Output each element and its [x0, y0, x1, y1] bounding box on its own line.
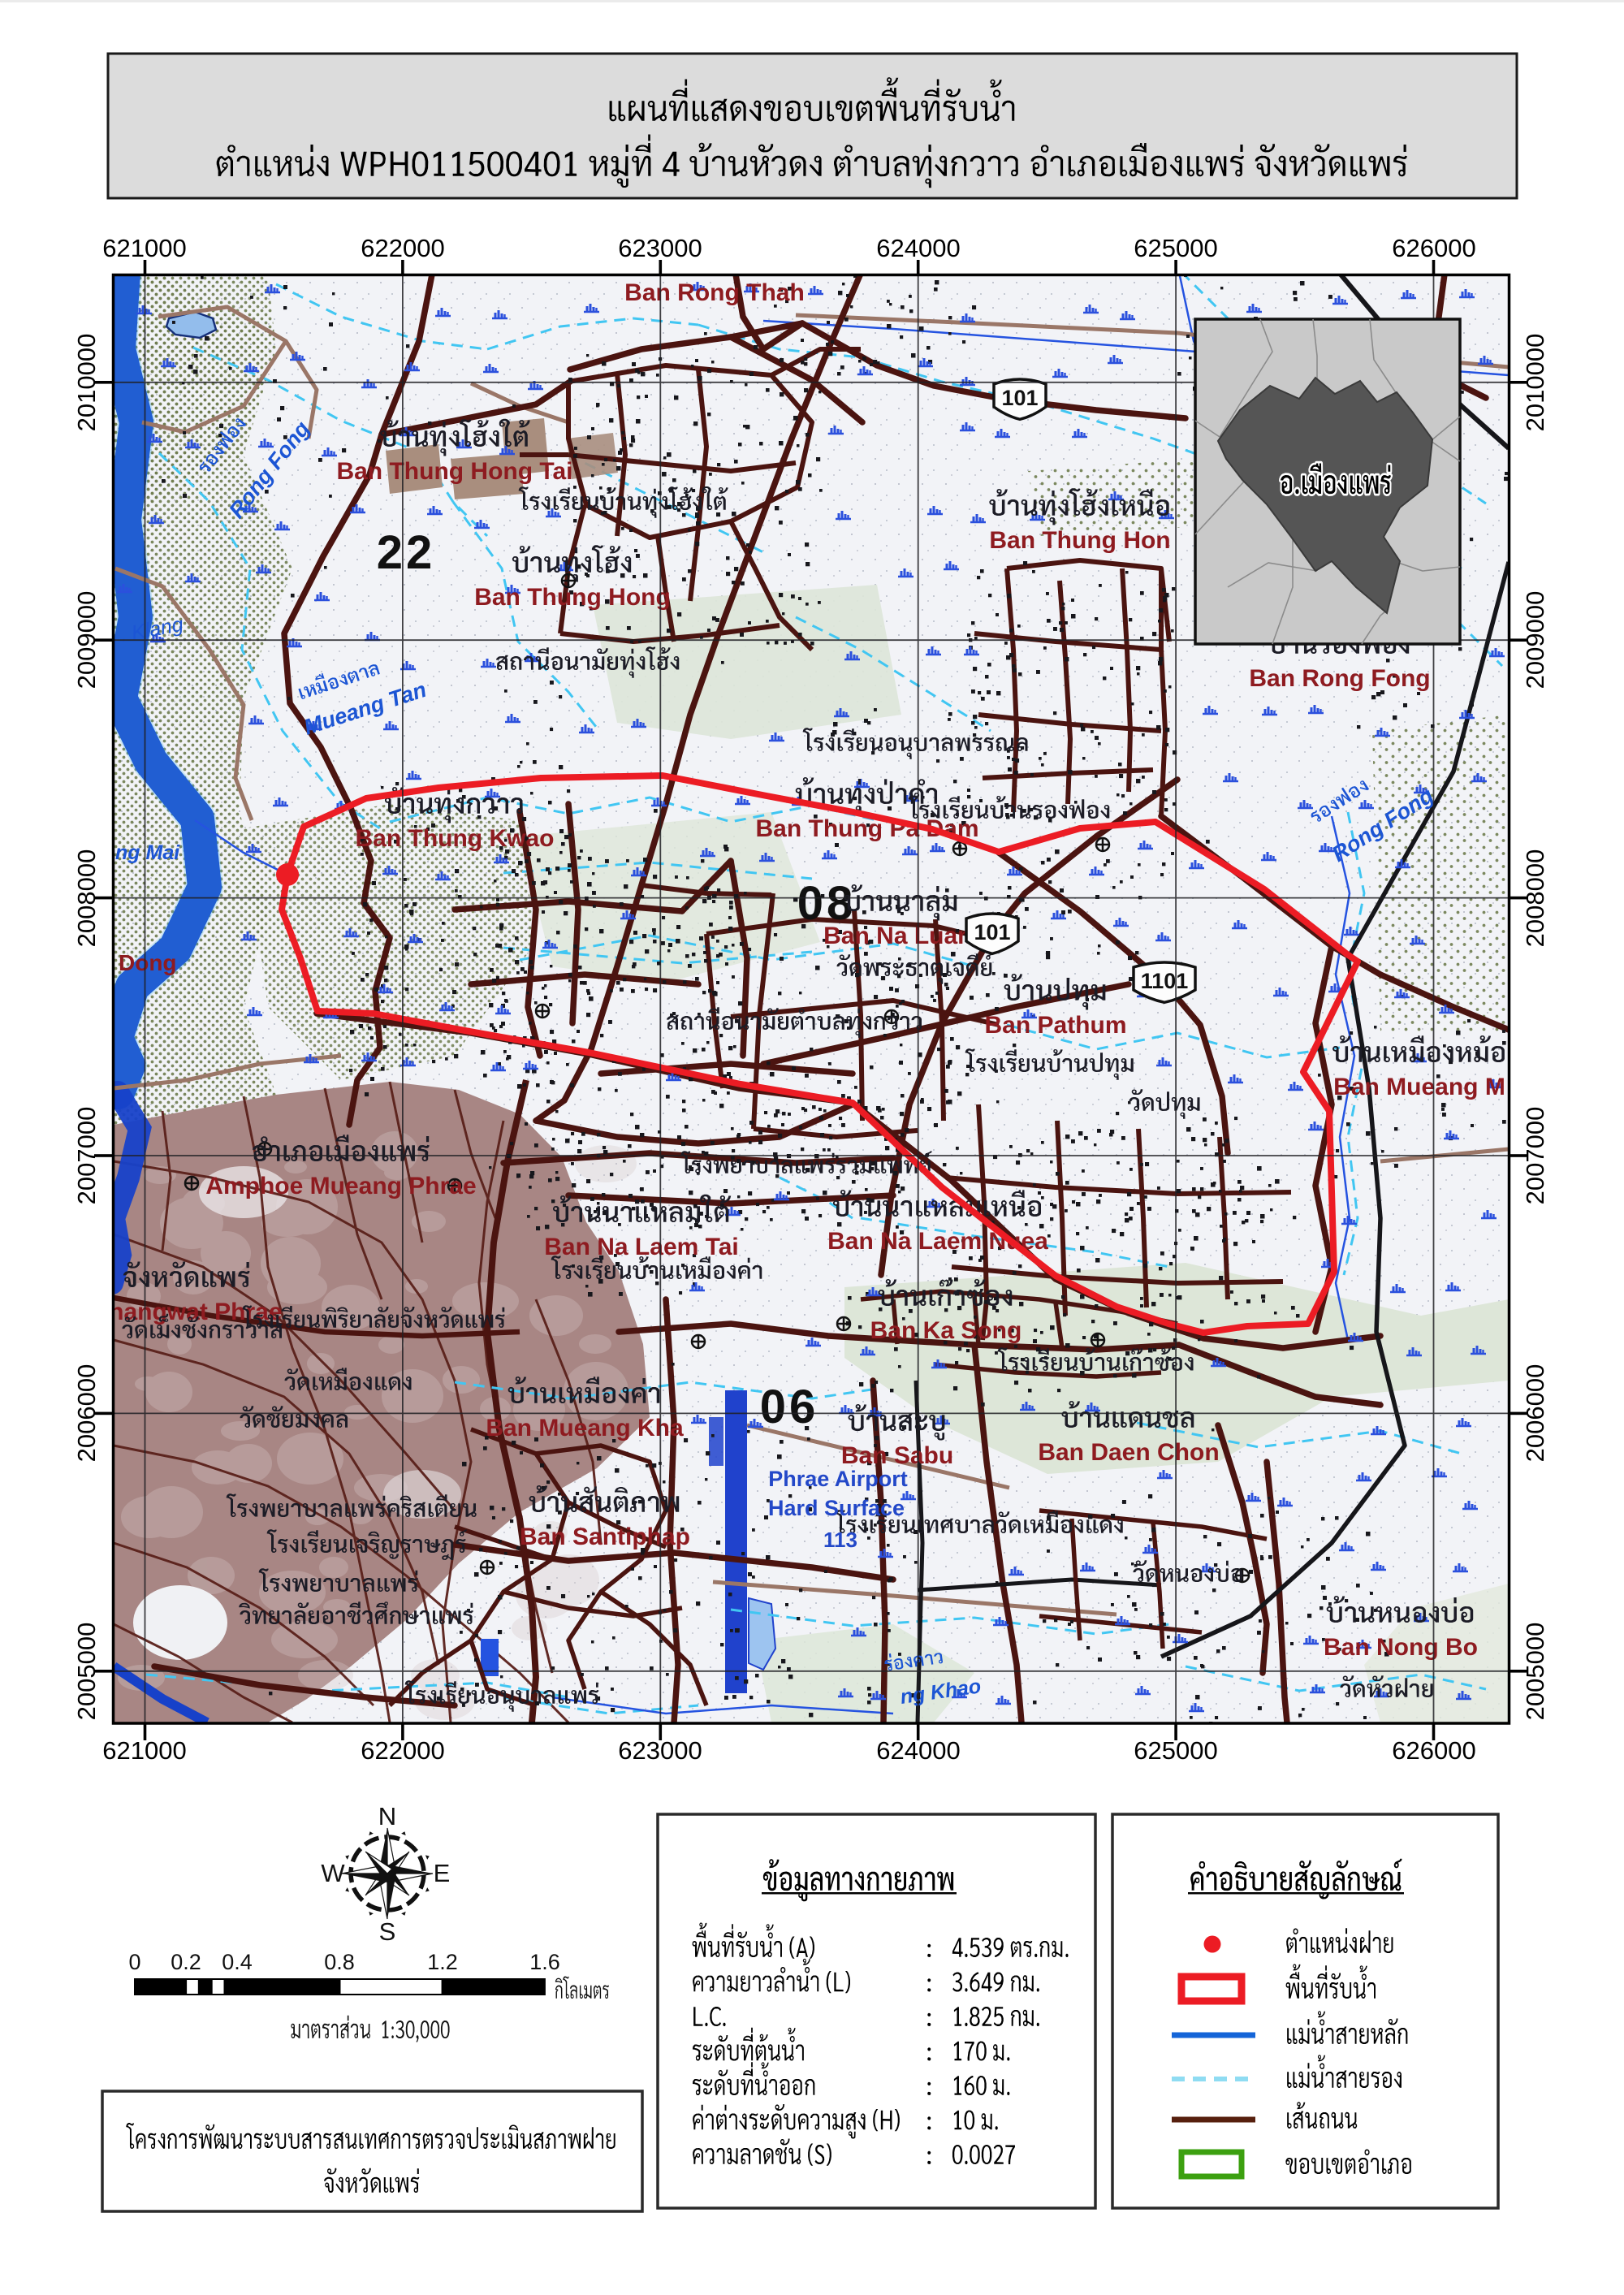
svg-text:Ban Mueang M: Ban Mueang M: [1333, 1074, 1505, 1100]
svg-text:Ban Thung Pa Dam: Ban Thung Pa Dam: [755, 815, 978, 842]
svg-text:625000: 625000: [1134, 234, 1217, 262]
svg-text:625000: 625000: [1134, 1736, 1217, 1765]
svg-text:624000: 624000: [876, 1736, 960, 1765]
svg-text:0.8: 0.8: [324, 1950, 355, 1974]
svg-text:Ban Pathum: Ban Pathum: [984, 1012, 1126, 1039]
svg-text:101: 101: [974, 920, 1010, 944]
svg-text:Ban Na Luam: Ban Na Luam: [823, 923, 979, 949]
svg-text:0.2: 0.2: [171, 1950, 201, 1974]
svg-text:Ban Thung Hon: Ban Thung Hon: [989, 527, 1170, 554]
svg-text:623000: 623000: [618, 234, 702, 262]
svg-text:Hard Surface: Hard Surface: [768, 1496, 905, 1520]
svg-text:Changwat Phrae: Changwat Phrae: [91, 1299, 282, 1325]
svg-text:621000: 621000: [102, 1736, 186, 1765]
svg-text:Ban Thung Kwao: Ban Thung Kwao: [356, 825, 555, 852]
svg-text:Ban Nong Bo: Ban Nong Bo: [1324, 1634, 1478, 1661]
svg-text:Ban Ka Song: Ban Ka Song: [870, 1317, 1022, 1344]
svg-text:624000: 624000: [876, 234, 960, 262]
svg-text:22: 22: [377, 526, 436, 579]
svg-text:1101: 1101: [1141, 969, 1189, 993]
svg-text:1.6: 1.6: [529, 1950, 560, 1974]
svg-text:Ban Mueang Kha: Ban Mueang Kha: [486, 1415, 684, 1441]
svg-text:ng Mai: ng Mai: [115, 841, 180, 864]
svg-text:Phrae Airport: Phrae Airport: [768, 1467, 908, 1491]
svg-text:Ban Daen Chon: Ban Daen Chon: [1038, 1439, 1219, 1466]
svg-text:Ban Sabu: Ban Sabu: [841, 1442, 953, 1469]
svg-text:06: 06: [760, 1381, 819, 1433]
svg-text:W: W: [321, 1859, 345, 1887]
svg-text:0: 0: [128, 1950, 140, 1974]
svg-text:113: 113: [823, 1528, 857, 1552]
svg-text:626000: 626000: [1392, 1736, 1475, 1765]
svg-text:626000: 626000: [1392, 234, 1475, 262]
svg-text:Amphoe Mueang Phrae: Amphoe Mueang Phrae: [205, 1173, 476, 1199]
svg-text:Ban Santiphap: Ban Santiphap: [520, 1524, 690, 1550]
svg-text:Ban Na Laem Tai: Ban Na Laem Tai: [544, 1234, 739, 1260]
svg-text:622000: 622000: [361, 234, 444, 262]
svg-text:N: N: [378, 1802, 396, 1830]
svg-text:Dong: Dong: [119, 950, 177, 975]
svg-text:Ban Rong Fong: Ban Rong Fong: [1249, 665, 1430, 692]
svg-text:Ban Thung Hong Tai: Ban Thung Hong Tai: [336, 458, 572, 485]
svg-text:101: 101: [1001, 386, 1038, 410]
svg-text:E: E: [434, 1859, 451, 1887]
svg-text:622000: 622000: [361, 1736, 444, 1765]
svg-text:Ban Rong Thah: Ban Rong Thah: [624, 279, 805, 306]
svg-text:0.4: 0.4: [222, 1950, 253, 1974]
svg-text:S: S: [379, 1917, 396, 1946]
svg-text:621000: 621000: [102, 234, 186, 262]
svg-text:623000: 623000: [618, 1736, 702, 1765]
svg-text:Ban Thung Hong: Ban Thung Hong: [474, 584, 671, 611]
svg-text:1.2: 1.2: [427, 1950, 458, 1974]
